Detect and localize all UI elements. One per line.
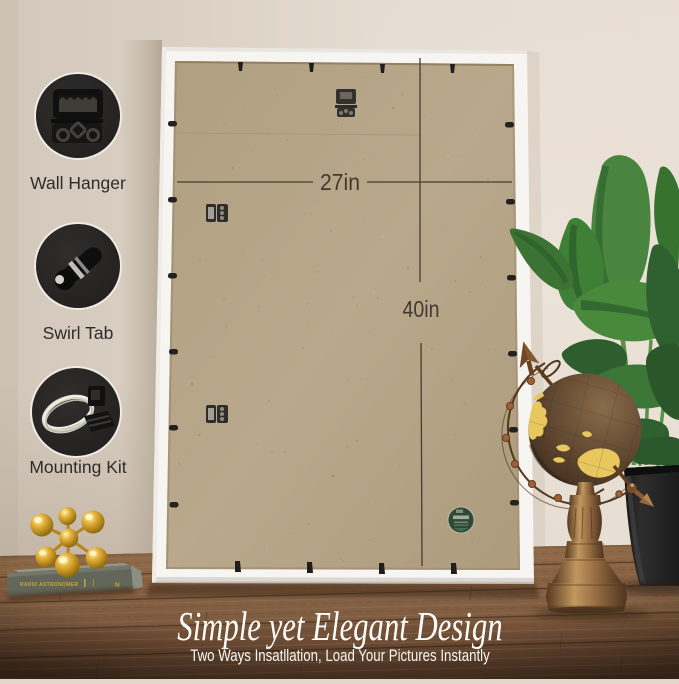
svg-text:27in: 27in (320, 169, 360, 195)
svg-text:40in: 40in (403, 296, 440, 322)
svg-text:RADIO ASTRONOMER: RADIO ASTRONOMER (20, 582, 78, 588)
